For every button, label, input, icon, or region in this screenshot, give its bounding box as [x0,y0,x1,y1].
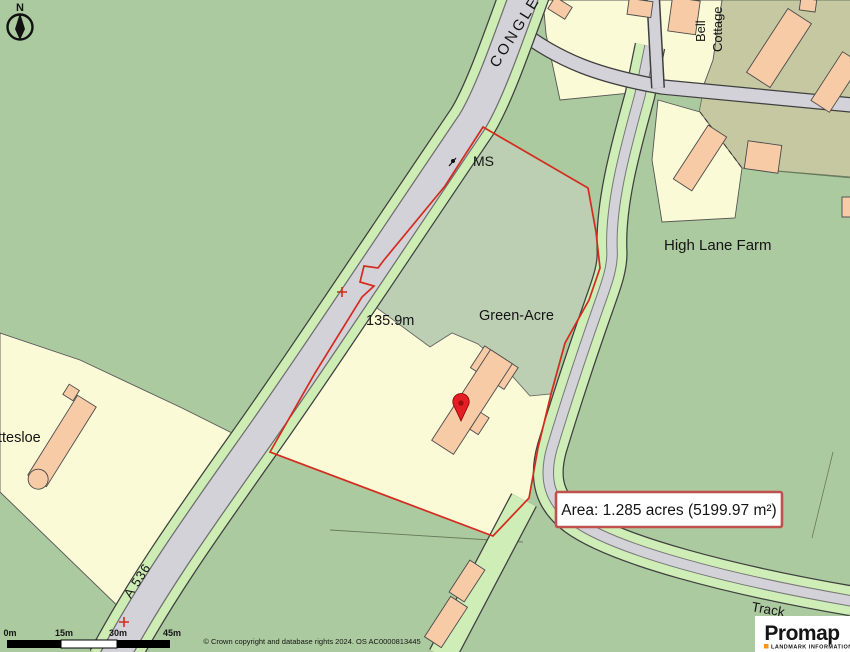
copyright-text: © Crown copyright and database rights 20… [203,637,420,646]
promap-accent-icon [764,644,769,649]
promap-tagline-text: LANDMARK INFORMATION [771,645,850,651]
area-annotation-text: Area: 1.285 acres (5199.97 m²) [561,502,776,519]
scale-tick-label: 0m [3,628,16,638]
high-lane-farm-label: High Lane Farm [664,237,772,254]
cottage-label: Cottage [710,6,725,52]
map-canvas: CONGLE MS 135.9m Green-Acre High Lane Fa… [0,0,850,652]
scale-tick-label: 45m [163,628,181,638]
promap-logo-text: Promap [764,622,839,645]
compass-n-label: N [16,2,24,14]
scale-tick-label: 30m [109,628,127,638]
ms-label: MS [473,153,494,169]
green-acre-label: Green-Acre [479,308,554,324]
bell-label: Bell [693,20,708,42]
scale-tick-label: 15m [55,628,73,638]
area-annotation: Area: 1.285 acres (5199.97 m²) [556,492,782,527]
map-viewport[interactable]: CONGLE MS 135.9m Green-Acre High Lane Fa… [0,0,850,652]
spot-height-label: 135.9m [366,313,414,329]
promap-logo: Promap LANDMARK INFORMATION [755,616,850,652]
ttesloe-label: ttesloe [0,430,41,446]
